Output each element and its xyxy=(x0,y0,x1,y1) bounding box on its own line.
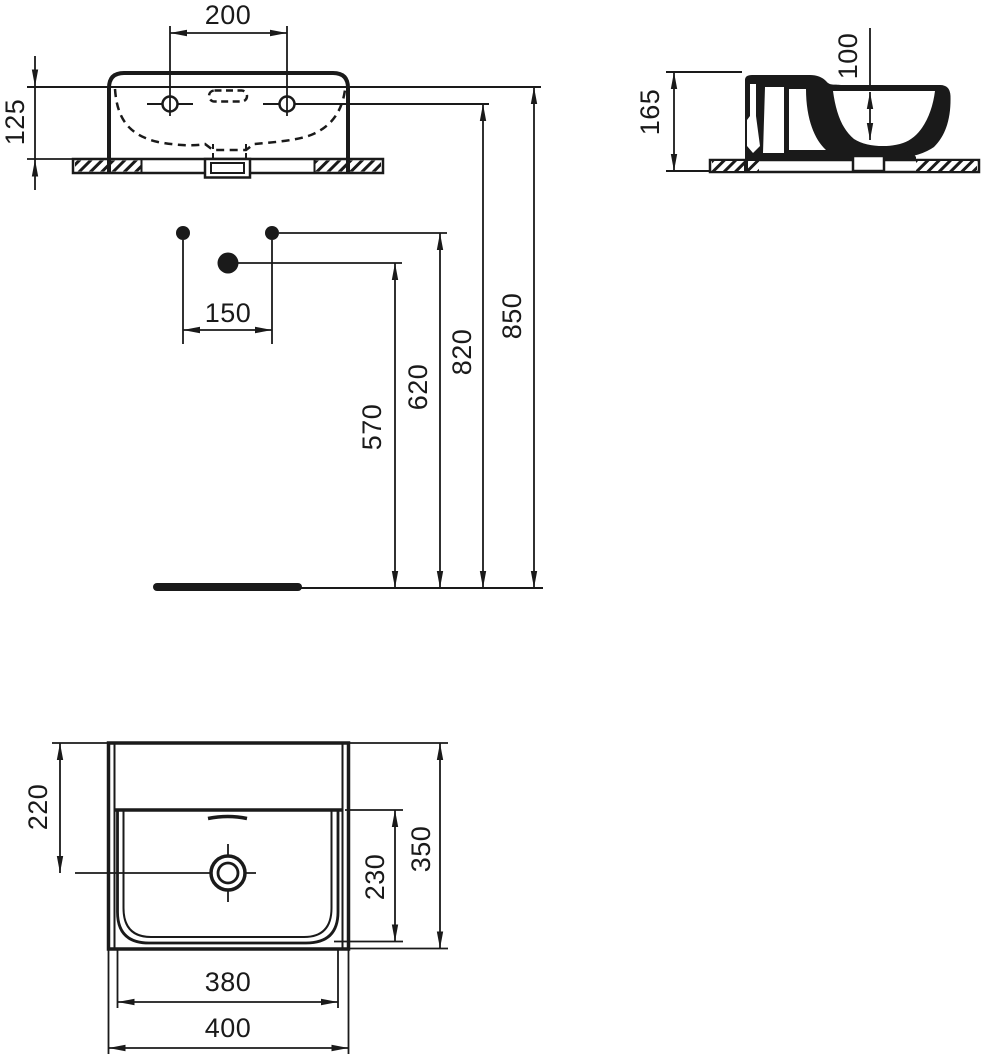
dim-label-220: 220 xyxy=(23,784,53,831)
side-drain-hole xyxy=(853,156,884,171)
side-view: 165 100 xyxy=(635,28,979,172)
dim-label-165: 165 xyxy=(635,89,665,136)
dim-label-620: 620 xyxy=(403,364,433,411)
supply-connection-left-dot xyxy=(176,226,190,240)
dim-label-380: 380 xyxy=(205,967,252,997)
drain-box-inner xyxy=(211,163,244,173)
waste-outlet-dot xyxy=(218,253,239,274)
dim-label-570: 570 xyxy=(357,404,387,451)
drawing-canvas: 200 125 165 100 xyxy=(0,0,983,1055)
dim-label-350: 350 xyxy=(406,826,436,873)
back-cavity-mid xyxy=(763,87,784,153)
plan-view: 220 230 350 380 400 xyxy=(23,743,448,1054)
side-shelf-hatch-right xyxy=(916,161,977,171)
dim-label-100: 100 xyxy=(833,33,863,80)
dim-label-125: 125 xyxy=(0,99,30,146)
dim-label-850: 850 xyxy=(497,293,527,340)
dim-label-200: 200 xyxy=(205,0,252,30)
technical-drawing-sheet: 200 125 165 100 xyxy=(0,0,983,1055)
side-shelf-hatch-left xyxy=(712,161,759,171)
front-view: 200 125 xyxy=(0,0,541,190)
plan-tap-hole-mark xyxy=(208,817,247,819)
dim-label-400: 400 xyxy=(205,1013,252,1043)
plan-drain-outer-circle xyxy=(211,856,245,890)
supply-connection-right-dot xyxy=(265,226,279,240)
dim-label-150: 150 xyxy=(205,298,252,328)
dim-label-230: 230 xyxy=(360,854,390,901)
dim-label-820: 820 xyxy=(447,329,477,376)
